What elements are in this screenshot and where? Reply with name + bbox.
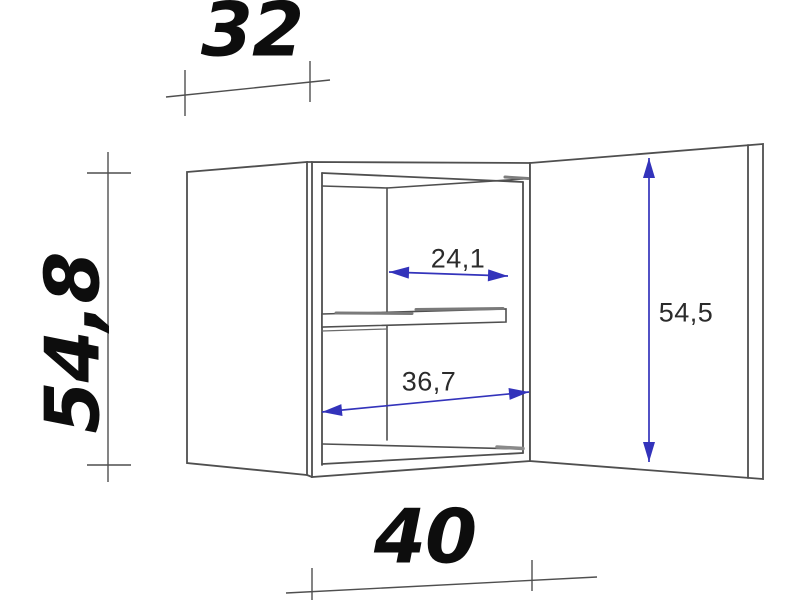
shelf [322,309,506,332]
left-side-panel [187,162,312,477]
dimension-label-height: 54,8 [36,252,111,433]
door-panel [530,144,763,479]
cabinet-dimension-diagram: 32 54,8 40 24,1 36,7 54,5 [0,0,800,600]
dimension-label-depth: 32 [201,0,303,68]
dimension-label-inner-width-top: 24,1 [431,244,486,275]
dimension-label-door-height: 54,5 [659,298,714,329]
dimension-label-width: 40 [374,500,476,575]
dimension-label-inner-width-bottom: 36,7 [402,367,457,398]
